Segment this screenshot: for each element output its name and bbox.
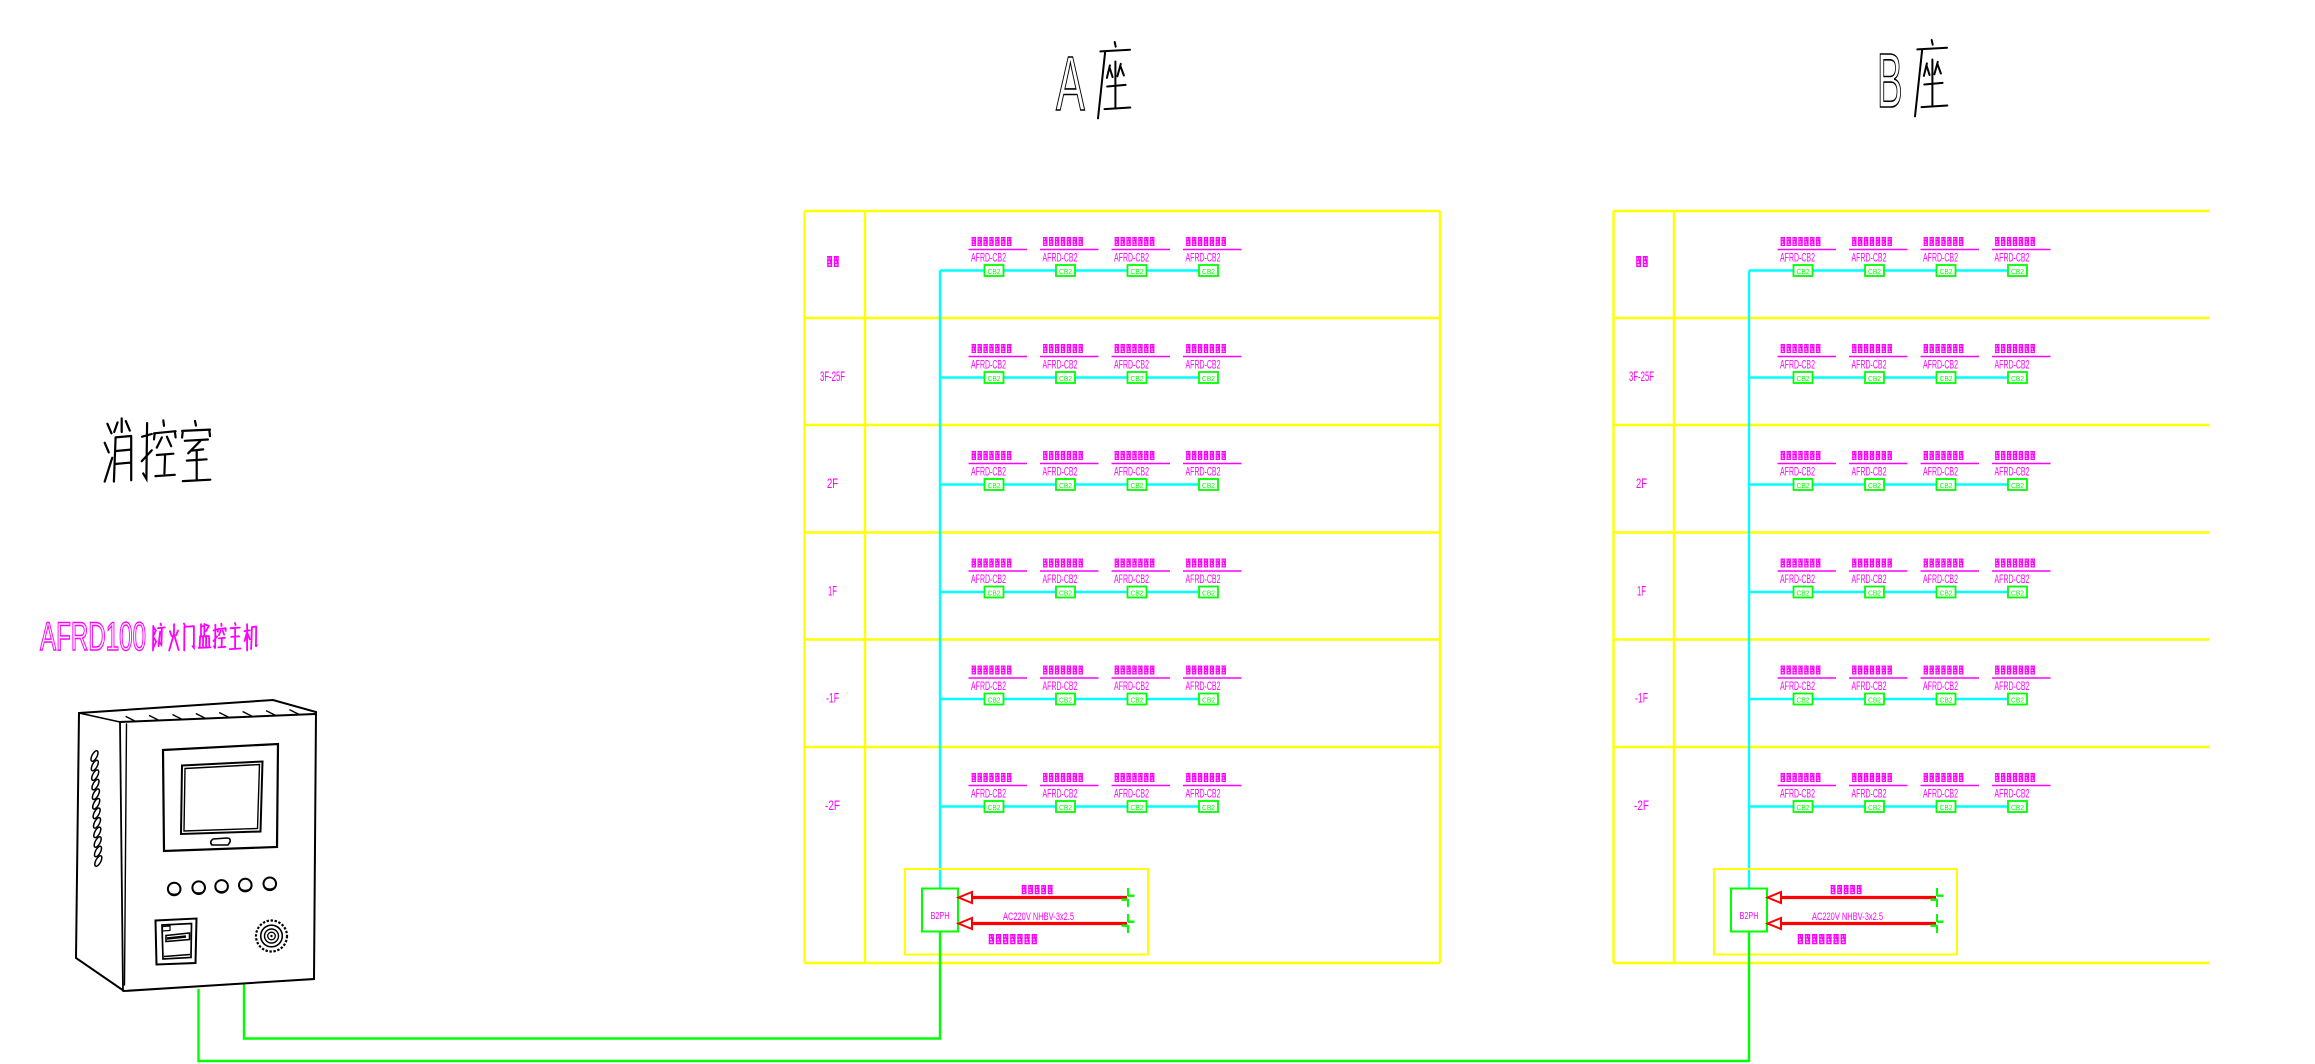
svg-text:AFRD-CB2: AFRD-CB2 <box>1043 679 1078 693</box>
svg-text:-2F: -2F <box>825 797 840 813</box>
svg-text:CB2: CB2 <box>1131 803 1144 812</box>
svg-text:AFRD-CB2: AFRD-CB2 <box>1186 465 1221 479</box>
svg-text:CB2: CB2 <box>1202 374 1215 383</box>
svg-text:AFRD-CB2: AFRD-CB2 <box>1114 787 1149 801</box>
svg-text:CB2: CB2 <box>2011 696 2024 705</box>
svg-text:AFRD-CB2: AFRD-CB2 <box>1852 572 1887 586</box>
svg-text:-1F: -1F <box>1635 690 1648 706</box>
svg-text:CB2: CB2 <box>1940 803 1953 812</box>
svg-text:CB2: CB2 <box>1202 481 1215 490</box>
svg-text:AFRD-CB2: AFRD-CB2 <box>1995 787 2030 801</box>
svg-text:AFRD-CB2: AFRD-CB2 <box>1995 465 2030 479</box>
svg-text:AFRD-CB2: AFRD-CB2 <box>1186 358 1221 372</box>
svg-text:AFRD-CB2: AFRD-CB2 <box>1043 787 1078 801</box>
svg-text:AFRD-CB2: AFRD-CB2 <box>971 358 1006 372</box>
svg-text:AFRD100: AFRD100 <box>40 615 146 659</box>
svg-text:CB2: CB2 <box>1202 803 1215 812</box>
svg-text:CB2: CB2 <box>988 589 1001 598</box>
svg-text:AFRD-CB2: AFRD-CB2 <box>1852 251 1887 265</box>
svg-text:CB2: CB2 <box>1131 267 1144 276</box>
svg-text:CB2: CB2 <box>1868 267 1881 276</box>
svg-text:AFRD-CB2: AFRD-CB2 <box>1114 251 1149 265</box>
svg-text:CB2: CB2 <box>1131 589 1144 598</box>
svg-text:AC220V NHBV-3x2.5: AC220V NHBV-3x2.5 <box>1812 911 1883 923</box>
svg-text:CB2: CB2 <box>1059 267 1072 276</box>
svg-text:AFRD-CB2: AFRD-CB2 <box>1923 787 1958 801</box>
svg-text:AFRD-CB2: AFRD-CB2 <box>971 787 1006 801</box>
svg-text:CB2: CB2 <box>1059 589 1072 598</box>
svg-text:AFRD-CB2: AFRD-CB2 <box>1995 358 2030 372</box>
svg-text:CB2: CB2 <box>988 481 1001 490</box>
svg-text:CB2: CB2 <box>2011 589 2024 598</box>
svg-text:AFRD-CB2: AFRD-CB2 <box>1780 251 1815 265</box>
svg-text:CB2: CB2 <box>1131 696 1144 705</box>
svg-text:CB2: CB2 <box>988 374 1001 383</box>
svg-text:CB2: CB2 <box>1940 481 1953 490</box>
svg-text:AFRD-CB2: AFRD-CB2 <box>1043 572 1078 586</box>
svg-text:A: A <box>1056 42 1085 127</box>
svg-text:AFRD-CB2: AFRD-CB2 <box>1995 251 2030 265</box>
svg-text:CB2: CB2 <box>1059 696 1072 705</box>
svg-text:-1F: -1F <box>826 690 839 706</box>
svg-text:CB2: CB2 <box>988 803 1001 812</box>
svg-text:AFRD-CB2: AFRD-CB2 <box>1923 679 1958 693</box>
svg-text:AFRD-CB2: AFRD-CB2 <box>1923 358 1958 372</box>
svg-text:AFRD-CB2: AFRD-CB2 <box>1923 465 1958 479</box>
svg-text:AFRD-CB2: AFRD-CB2 <box>1780 787 1815 801</box>
svg-text:CB2: CB2 <box>1797 803 1810 812</box>
svg-text:AFRD-CB2: AFRD-CB2 <box>1852 358 1887 372</box>
svg-text:1F: 1F <box>1637 583 1646 599</box>
svg-text:AFRD-CB2: AFRD-CB2 <box>1043 251 1078 265</box>
svg-text:AFRD-CB2: AFRD-CB2 <box>1780 572 1815 586</box>
svg-text:CB2: CB2 <box>2011 481 2024 490</box>
svg-text:AFRD-CB2: AFRD-CB2 <box>1114 358 1149 372</box>
svg-text:AFRD-CB2: AFRD-CB2 <box>1186 679 1221 693</box>
svg-text:CB2: CB2 <box>988 267 1001 276</box>
svg-text:CB2: CB2 <box>2011 374 2024 383</box>
svg-text:AFRD-CB2: AFRD-CB2 <box>1923 572 1958 586</box>
svg-text:B2PH: B2PH <box>1740 910 1759 922</box>
svg-text:AFRD-CB2: AFRD-CB2 <box>1186 787 1221 801</box>
svg-text:AFRD-CB2: AFRD-CB2 <box>1995 679 2030 693</box>
svg-text:B2PH: B2PH <box>931 910 950 922</box>
svg-text:AFRD-CB2: AFRD-CB2 <box>971 572 1006 586</box>
svg-text:AFRD-CB2: AFRD-CB2 <box>1186 251 1221 265</box>
svg-text:AFRD-CB2: AFRD-CB2 <box>1852 465 1887 479</box>
svg-text:CB2: CB2 <box>1202 696 1215 705</box>
svg-text:2F: 2F <box>827 475 838 491</box>
svg-text:CB2: CB2 <box>1868 481 1881 490</box>
svg-text:CB2: CB2 <box>988 696 1001 705</box>
svg-text:CB2: CB2 <box>2011 803 2024 812</box>
svg-text:CB2: CB2 <box>1797 267 1810 276</box>
svg-text:AFRD-CB2: AFRD-CB2 <box>1780 358 1815 372</box>
svg-text:1F: 1F <box>828 583 837 599</box>
svg-text:AFRD-CB2: AFRD-CB2 <box>971 465 1006 479</box>
svg-text:CB2: CB2 <box>1202 589 1215 598</box>
svg-text:CB2: CB2 <box>1797 374 1810 383</box>
svg-text:CB2: CB2 <box>1131 374 1144 383</box>
svg-text:AFRD-CB2: AFRD-CB2 <box>1043 465 1078 479</box>
svg-text:CB2: CB2 <box>1940 374 1953 383</box>
svg-text:CB2: CB2 <box>1059 374 1072 383</box>
svg-text:AFRD-CB2: AFRD-CB2 <box>971 679 1006 693</box>
svg-text:CB2: CB2 <box>1868 696 1881 705</box>
svg-text:CB2: CB2 <box>1059 803 1072 812</box>
svg-text:CB2: CB2 <box>1797 696 1810 705</box>
svg-text:CB2: CB2 <box>1797 589 1810 598</box>
svg-text:AFRD-CB2: AFRD-CB2 <box>1114 465 1149 479</box>
svg-text:AFRD-CB2: AFRD-CB2 <box>1780 465 1815 479</box>
svg-text:AFRD-CB2: AFRD-CB2 <box>1043 358 1078 372</box>
svg-text:CB2: CB2 <box>2011 267 2024 276</box>
svg-text:AFRD-CB2: AFRD-CB2 <box>1995 572 2030 586</box>
svg-text:CB2: CB2 <box>1868 803 1881 812</box>
svg-text:AFRD-CB2: AFRD-CB2 <box>1780 679 1815 693</box>
svg-text:AFRD-CB2: AFRD-CB2 <box>1852 787 1887 801</box>
svg-text:CB2: CB2 <box>1940 589 1953 598</box>
svg-text:AC220V NHBV-3x2.5: AC220V NHBV-3x2.5 <box>1003 911 1074 923</box>
svg-text:AFRD-CB2: AFRD-CB2 <box>971 251 1006 265</box>
svg-text:CB2: CB2 <box>1202 267 1215 276</box>
svg-text:2F: 2F <box>1636 475 1647 491</box>
svg-text:AFRD-CB2: AFRD-CB2 <box>1186 572 1221 586</box>
svg-text:-2F: -2F <box>1634 797 1649 813</box>
svg-text:CB2: CB2 <box>1131 481 1144 490</box>
svg-text:AFRD-CB2: AFRD-CB2 <box>1852 679 1887 693</box>
svg-text:CB2: CB2 <box>1868 589 1881 598</box>
svg-text:B: B <box>1877 37 1903 123</box>
svg-text:AFRD-CB2: AFRD-CB2 <box>1114 572 1149 586</box>
svg-text:CB2: CB2 <box>1940 696 1953 705</box>
svg-text:3F-25F: 3F-25F <box>820 368 845 384</box>
svg-text:CB2: CB2 <box>1868 374 1881 383</box>
svg-text:3F-25F: 3F-25F <box>1629 368 1654 384</box>
svg-text:CB2: CB2 <box>1940 267 1953 276</box>
svg-text:CB2: CB2 <box>1797 481 1810 490</box>
svg-text:CB2: CB2 <box>1059 481 1072 490</box>
svg-text:AFRD-CB2: AFRD-CB2 <box>1114 679 1149 693</box>
svg-text:AFRD-CB2: AFRD-CB2 <box>1923 251 1958 265</box>
